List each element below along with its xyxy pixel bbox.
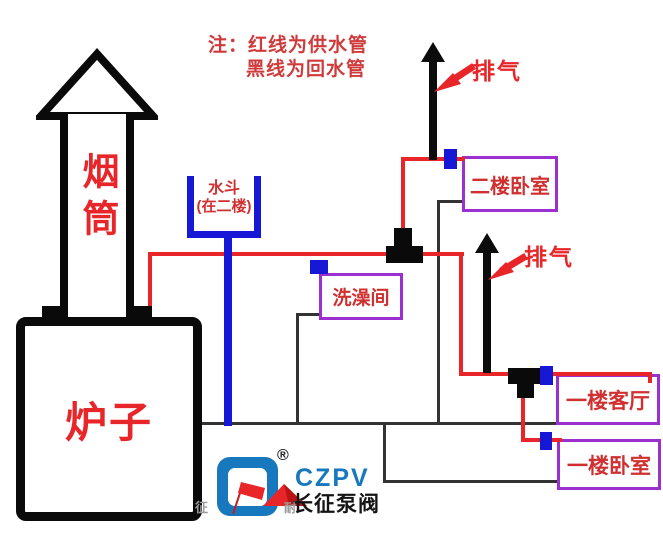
pointer-arrow-top-icon xyxy=(432,60,476,94)
stove-label: 炉子 xyxy=(65,389,153,450)
valve-bedroom-2f-icon xyxy=(444,149,457,169)
pointer-arrow-mid-icon xyxy=(486,250,528,282)
room-box-bedroom-1f: 一楼卧室 xyxy=(557,439,661,490)
room-label-living-1f: 一楼客厅 xyxy=(566,385,650,415)
return-pipe-bathroom-v xyxy=(296,313,299,425)
return-pipe-lower-v xyxy=(383,422,386,483)
tee-fitting-upper-bar-icon xyxy=(386,246,423,263)
return-pipe-main xyxy=(178,422,560,425)
return-pipe-bedroom2f-v xyxy=(437,200,440,425)
room-label-bedroom-2f: 二楼卧室 xyxy=(470,170,550,199)
tee-fitting-lower-stem-icon xyxy=(517,384,534,398)
supply-pipe-stove-riser xyxy=(148,255,152,310)
stove-body: 炉子 xyxy=(16,317,202,521)
chimney-roof-icon xyxy=(36,46,158,120)
exhaust-arrowhead-top-icon xyxy=(421,42,445,62)
exhaust-label-top: 排气 xyxy=(472,52,522,86)
valve-living-1f-icon xyxy=(540,366,553,385)
bucket-label-line2: (在二楼) xyxy=(172,198,276,215)
registered-mark: ® xyxy=(277,447,289,465)
exhaust-label-mid: 排气 xyxy=(524,238,574,272)
return-pipe-bedroom2f-h xyxy=(437,200,465,203)
room-label-bathroom: 洗澡间 xyxy=(332,283,389,310)
chimney-label: 烟筒 xyxy=(70,152,124,246)
return-pipe-lower-h xyxy=(383,480,561,483)
bucket-label: 水斗 (在二楼) xyxy=(172,180,276,216)
logo-watermark-left: 征 xyxy=(195,497,208,516)
supply-pipe-living-hook xyxy=(648,375,652,383)
room-box-living-1f: 一楼客厅 xyxy=(556,374,660,425)
supply-pipe-bedroom2f-riser xyxy=(401,158,405,236)
logo-watermark-right: 耐 xyxy=(284,499,296,516)
valve-bedroom-1f-icon xyxy=(540,432,552,450)
room-label-bedroom-1f: 一楼卧室 xyxy=(567,450,651,480)
water-feed-pipe xyxy=(224,236,232,426)
note-line1: 注：红线为供水管 xyxy=(208,30,368,57)
heating-system-diagram: 注：红线为供水管 黑线为回水管 二楼卧室 洗澡间 一楼客厅 一楼卧室 烟筒 炉子 xyxy=(0,0,663,545)
room-box-bedroom-2f: 二楼卧室 xyxy=(462,156,558,212)
supply-pipe-right-drop xyxy=(459,252,463,376)
room-box-bathroom: 洗澡间 xyxy=(319,273,403,320)
supply-pipe-bedroom1f-drop xyxy=(521,396,525,442)
valve-bathroom-icon xyxy=(310,260,328,274)
bucket-label-line1: 水斗 xyxy=(172,180,276,198)
logo-brand-name: 长征泵阀 xyxy=(292,488,380,518)
note-line2: 黑线为回水管 xyxy=(246,54,366,81)
